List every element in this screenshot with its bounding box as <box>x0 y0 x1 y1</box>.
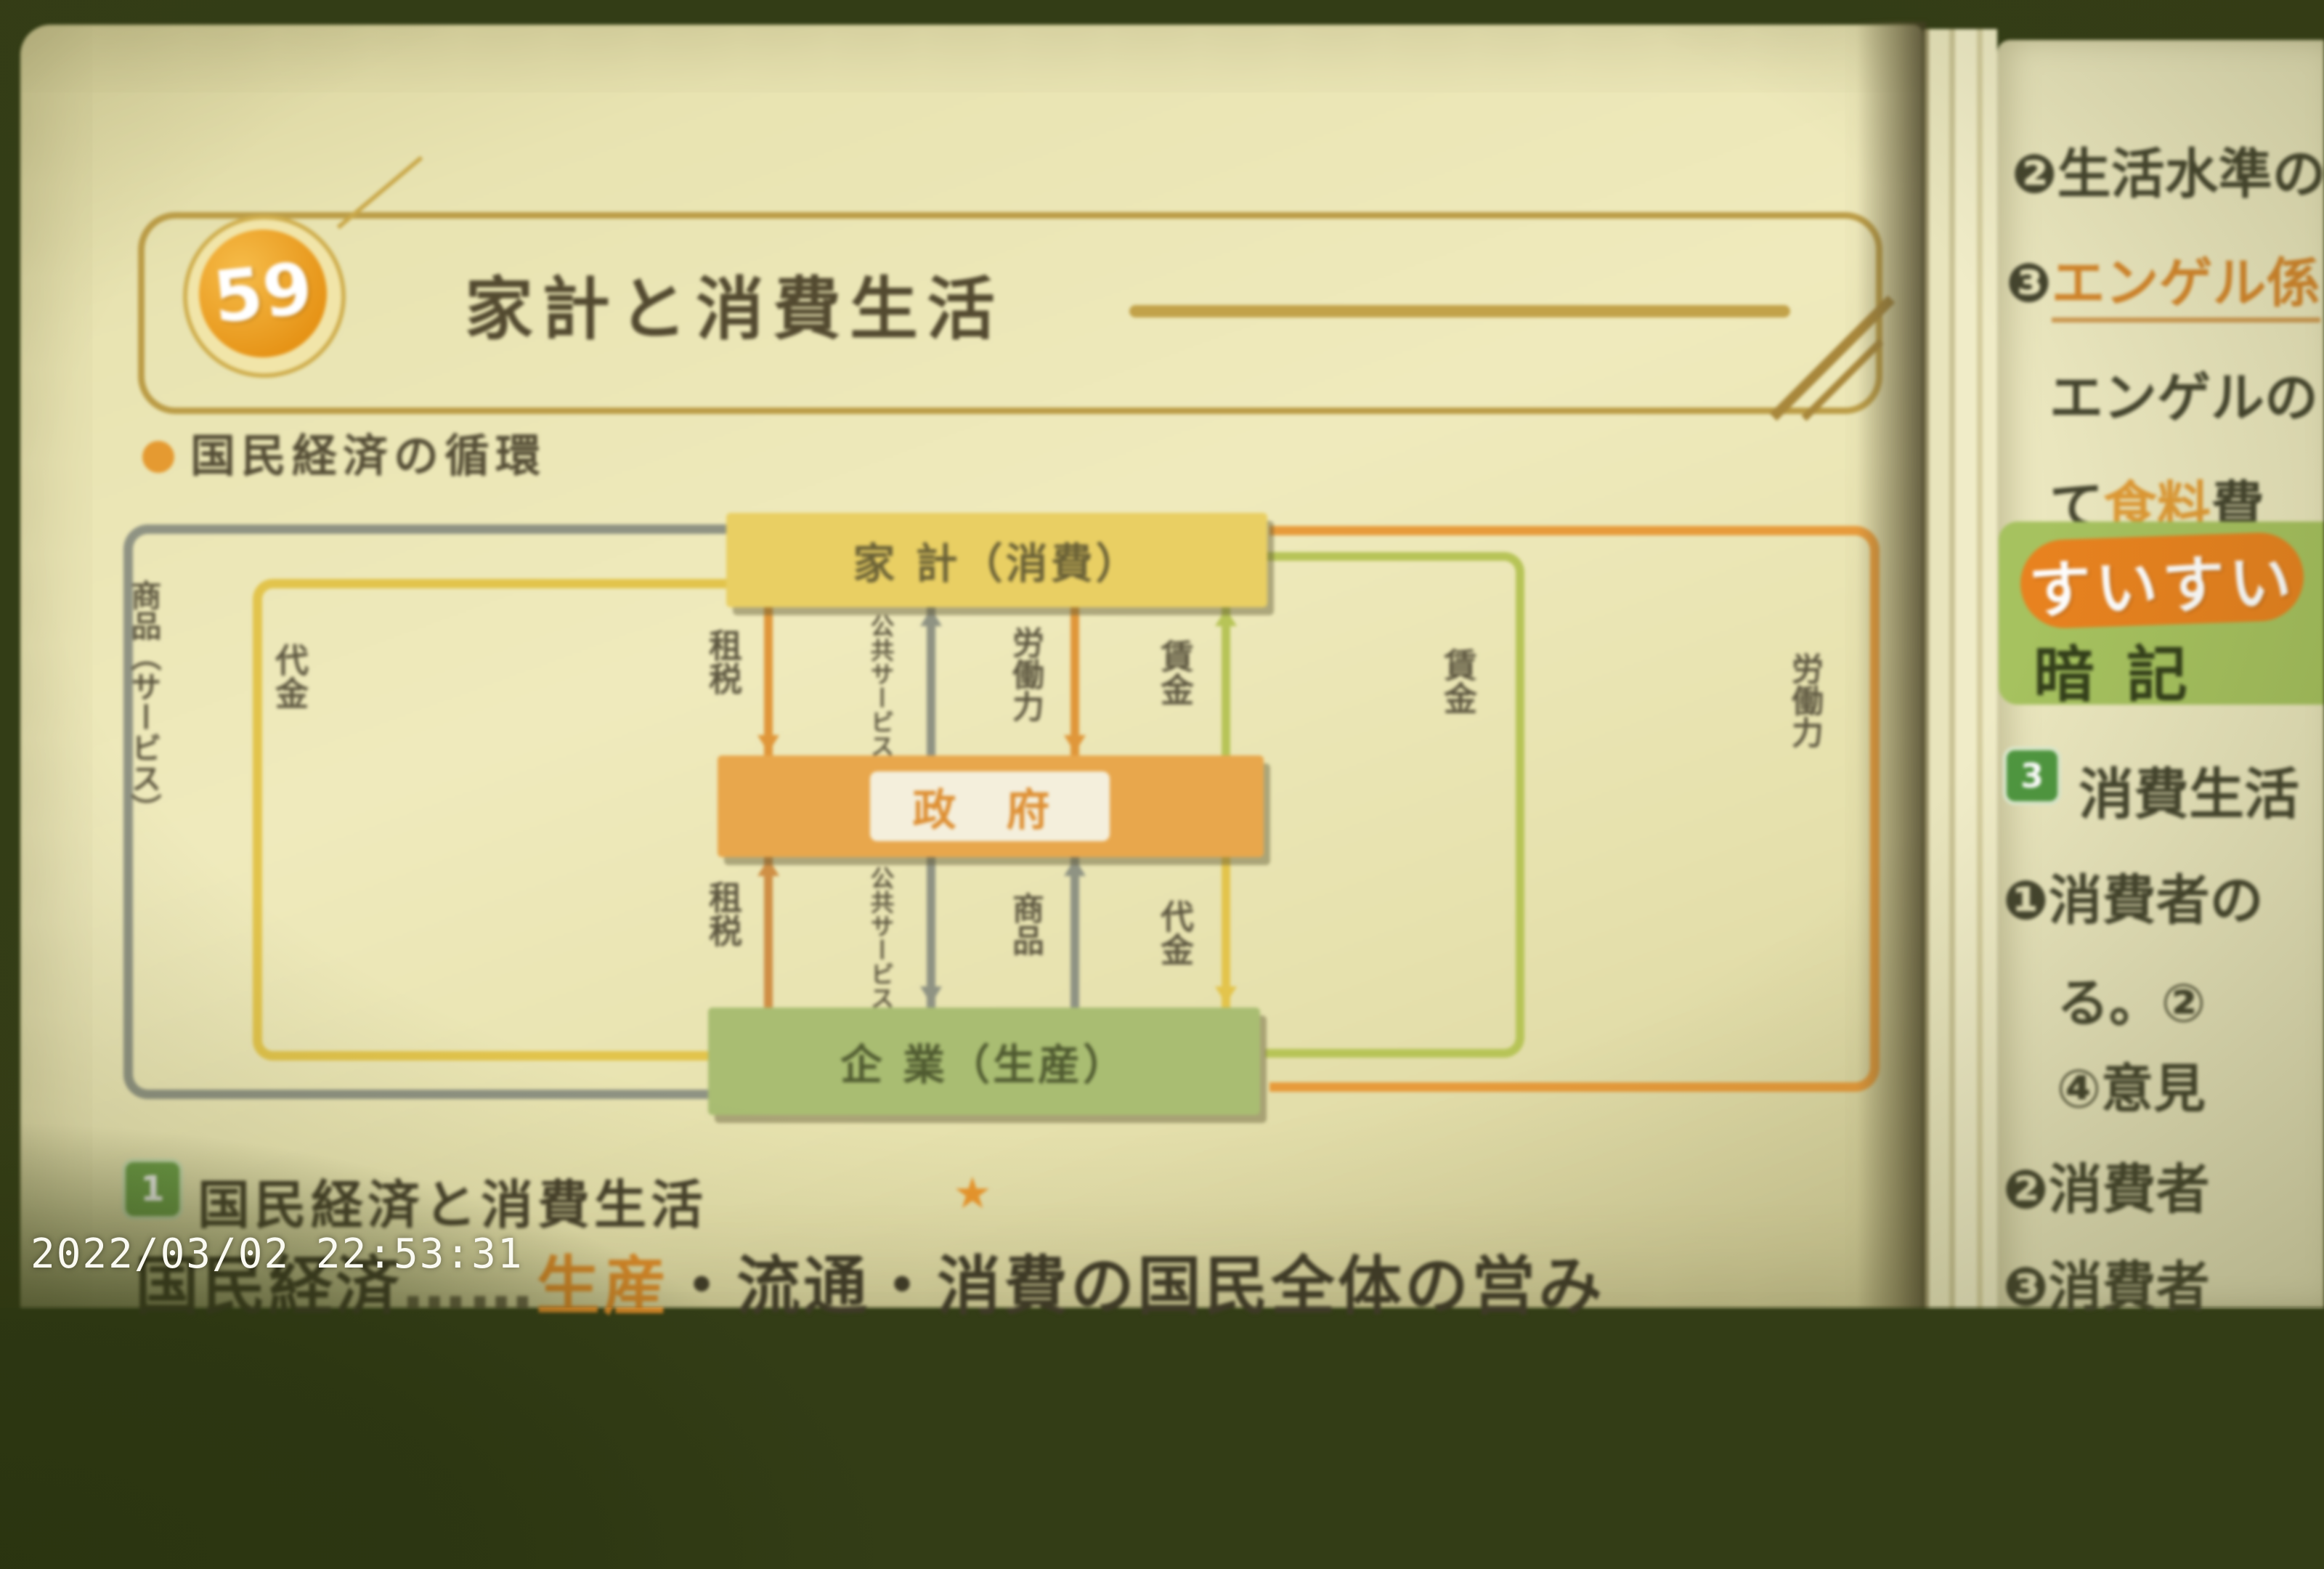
camera-timestamp: 2022/03/02 22:53:31 <box>31 1231 524 1278</box>
photo-vignette <box>0 0 2324 1307</box>
